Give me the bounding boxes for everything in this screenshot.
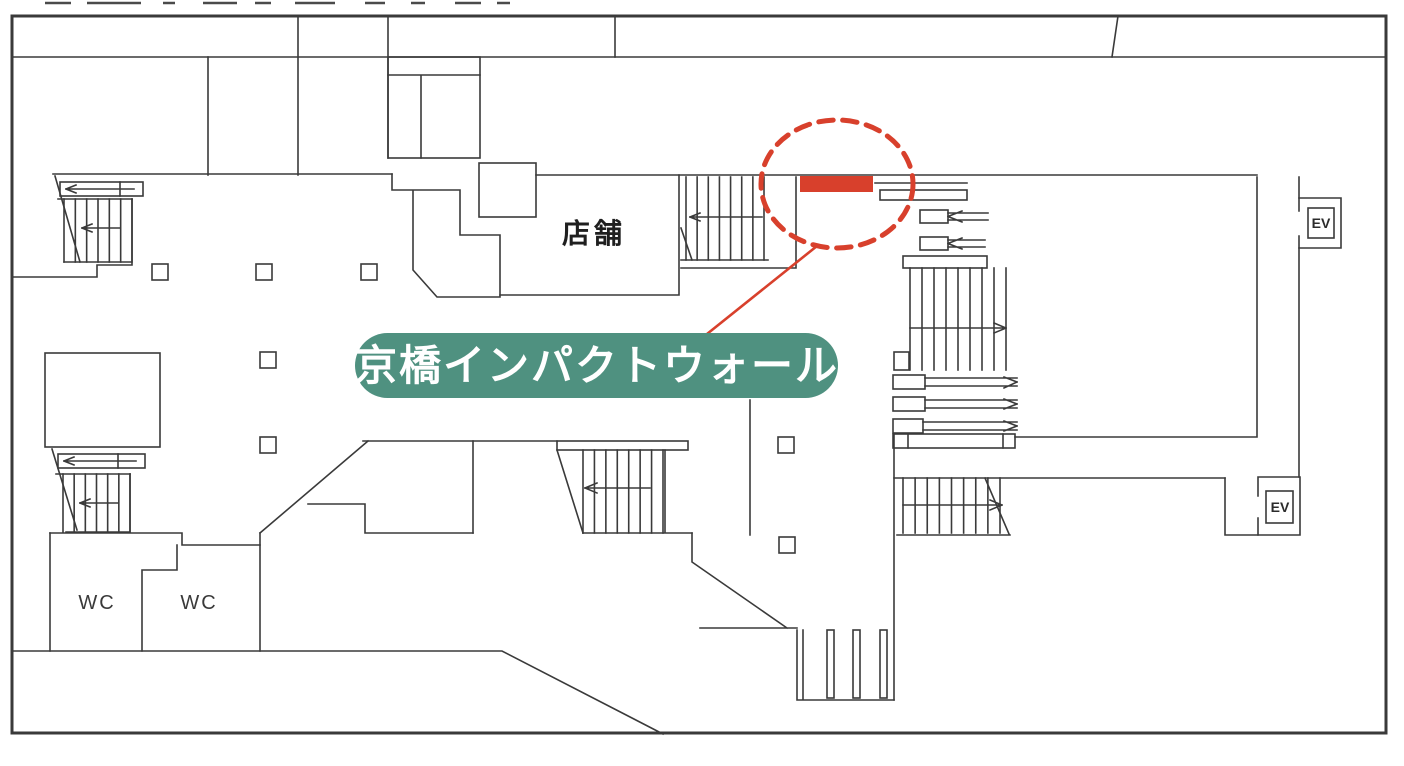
impact-wall-marker [800,176,873,192]
escalator-icon-east-down [893,375,1017,448]
escalator-icon-northwest [60,182,143,196]
shop-label: 店舗 [562,218,626,249]
left-room [45,353,160,447]
ev-label: EV [1312,215,1331,231]
top-band-walls [12,16,1386,175]
stairs-icon-center [557,441,797,628]
lower-boundary-wall [12,651,663,734]
ticket-gates-icon [797,630,894,700]
angled-wall-center-left [260,400,750,535]
upper-rooms [53,57,1257,297]
ev-label: EV [1271,499,1290,515]
escalator-icon-east-up [920,210,988,250]
wc-label: WC [180,592,217,614]
station-floor-plan-page: WC WC [0,0,1404,766]
walkway-lanes [875,183,967,200]
wc-label: WC [78,592,115,614]
floor-plan-drawing: WC WC [0,0,1404,766]
callout-label: 京橋インパクトウォール [355,342,839,389]
stairs-icon-south-center [894,478,1258,535]
escalator-icon-west [58,454,145,468]
stairs-icon-east [894,256,1006,370]
